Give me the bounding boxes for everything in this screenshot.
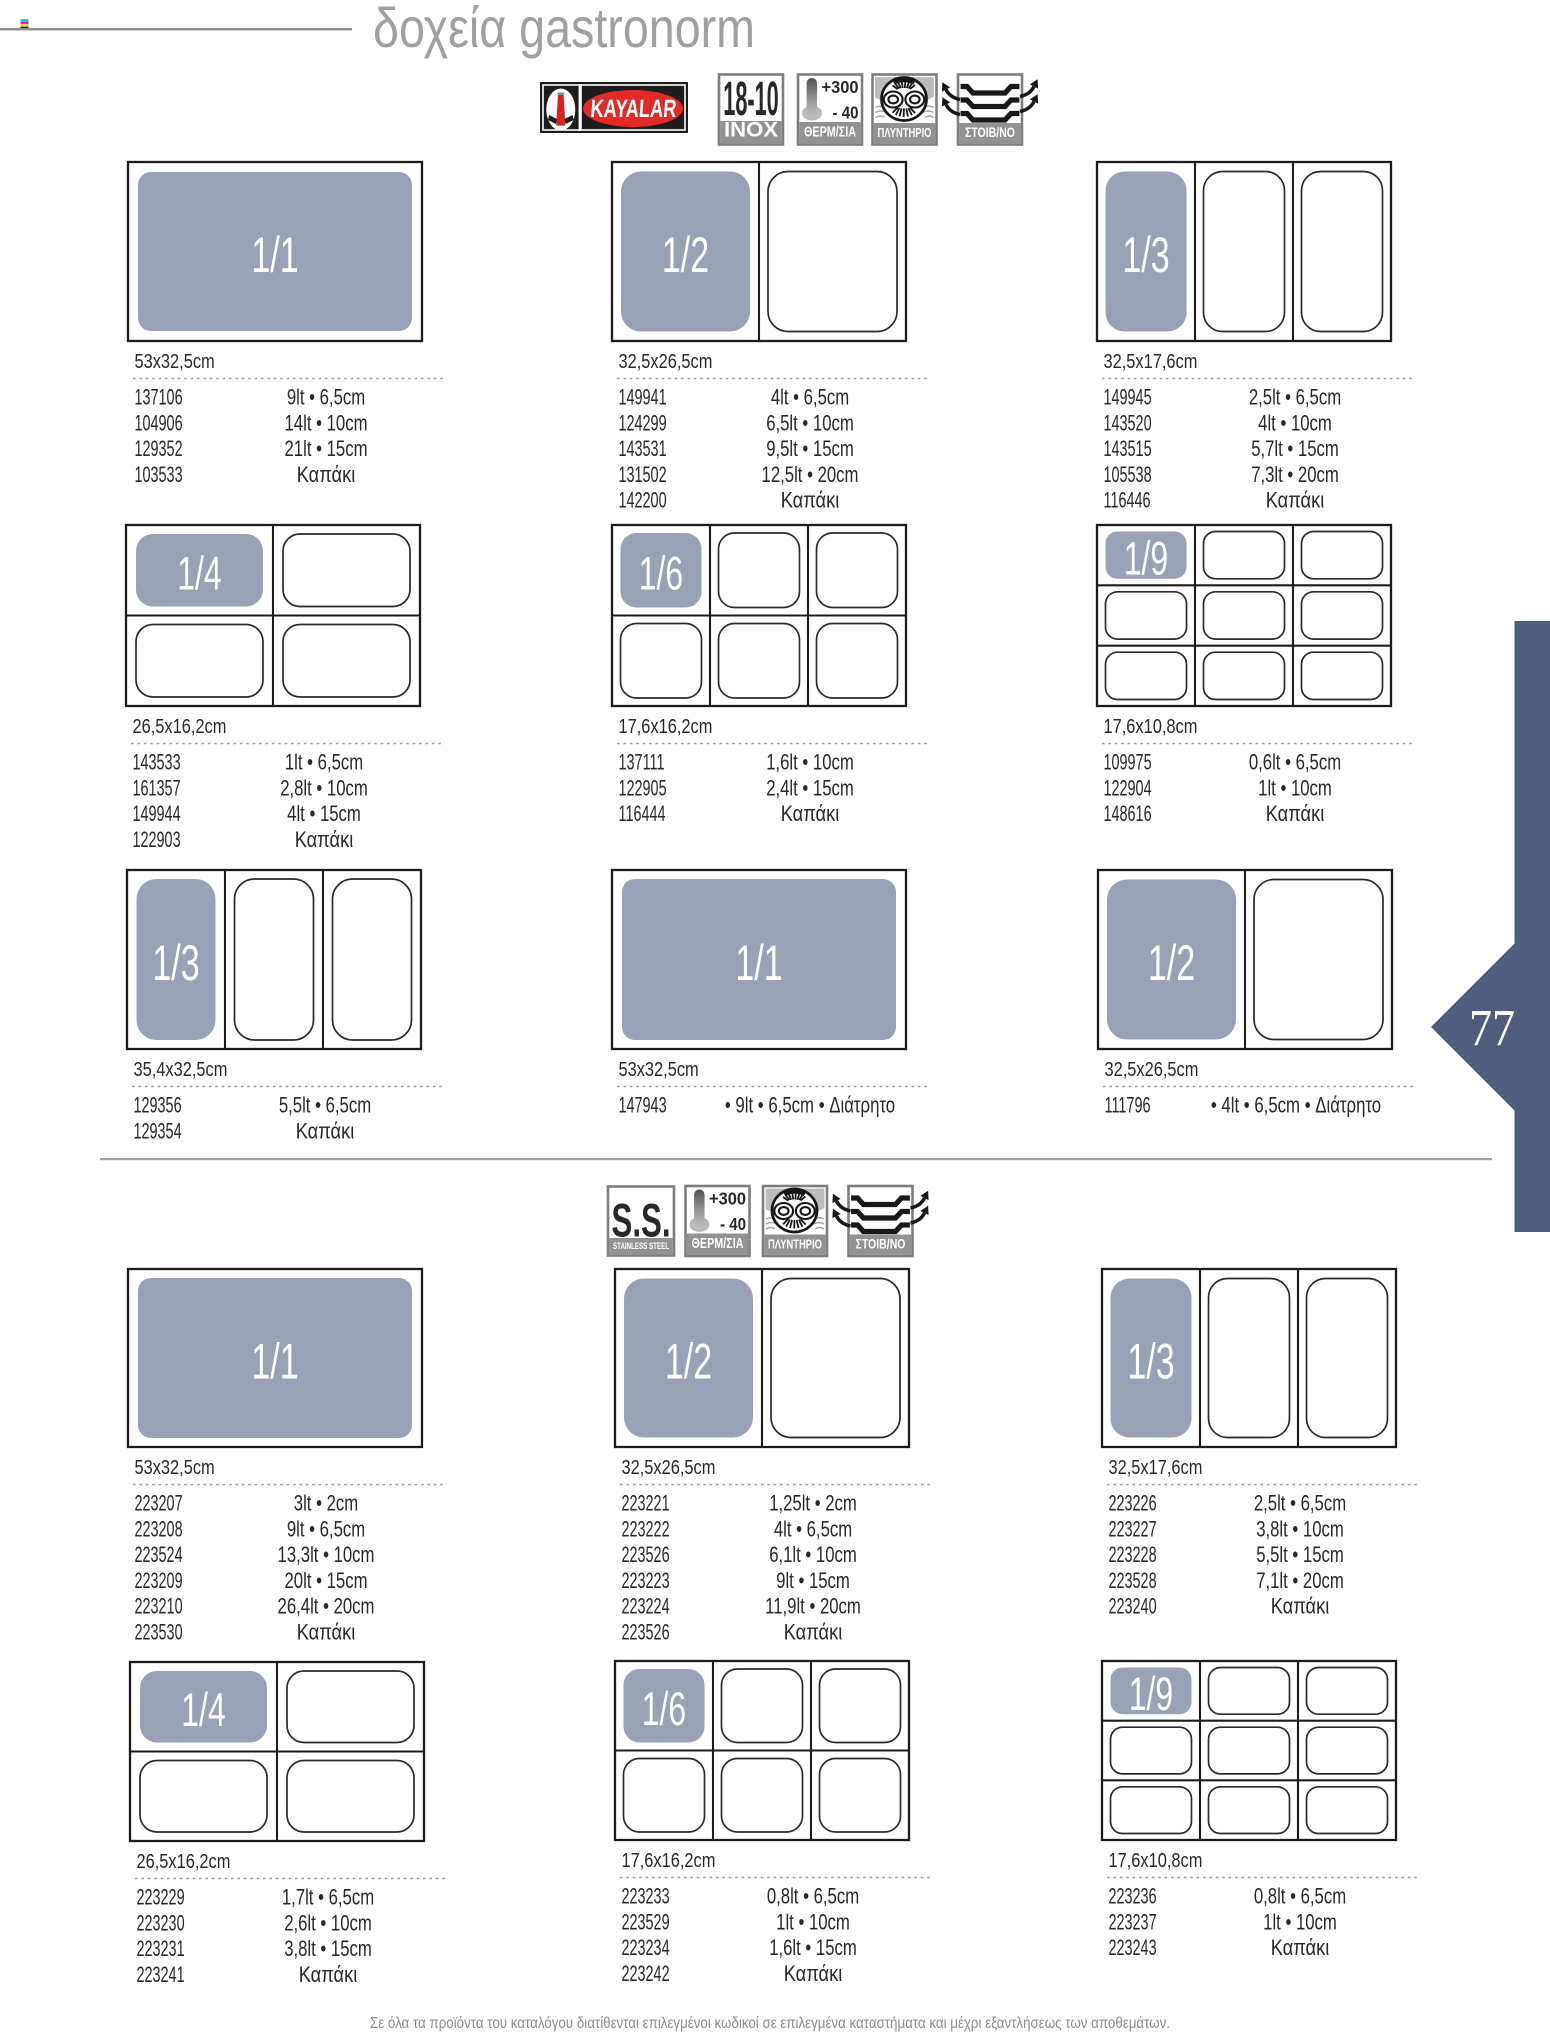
- svg-text:2,4lt • 15cm: 2,4lt • 15cm: [766, 775, 854, 800]
- svg-text:223224: 223224: [622, 1594, 670, 1619]
- svg-text:116446: 116446: [1104, 488, 1151, 513]
- svg-text:53x32,5cm: 53x32,5cm: [135, 1457, 215, 1479]
- svg-text:Καπάκι: Καπάκι: [297, 1620, 356, 1645]
- svg-text:Σε όλα τα προϊόντα του καταλόγ: Σε όλα τα προϊόντα του καταλόγου διατίθε…: [370, 2015, 1170, 2032]
- svg-text:7,3lt • 20cm: 7,3lt • 20cm: [1251, 462, 1339, 487]
- svg-text:223230: 223230: [137, 1910, 185, 1935]
- svg-text:137106: 137106: [135, 385, 183, 410]
- svg-text:ΠΛΥΝΤΗΡΙΟ: ΠΛΥΝΤΗΡΙΟ: [768, 1237, 822, 1251]
- svg-text:143515: 143515: [1104, 436, 1152, 461]
- svg-text:1/1: 1/1: [251, 1334, 298, 1390]
- svg-text:Καπάκι: Καπάκι: [784, 1961, 843, 1986]
- svg-text:223528: 223528: [1109, 1568, 1157, 1593]
- svg-text:223241: 223241: [137, 1962, 185, 1987]
- svg-text:Καπάκι: Καπάκι: [295, 827, 354, 852]
- svg-text:77: 77: [1469, 1000, 1515, 1057]
- svg-text:20lt • 15cm: 20lt • 15cm: [285, 1568, 368, 1593]
- svg-text:17,6x16,2cm: 17,6x16,2cm: [619, 716, 713, 738]
- svg-text:S.S.: S.S.: [612, 1194, 671, 1247]
- svg-text:ΣΤΟΙΒ/ΝΟ: ΣΤΟΙΒ/ΝΟ: [856, 1236, 906, 1251]
- svg-text:149941: 149941: [619, 385, 667, 410]
- svg-text:2,5lt • 6,5cm: 2,5lt • 6,5cm: [1249, 385, 1341, 410]
- svg-text:21lt • 15cm: 21lt • 15cm: [285, 436, 368, 461]
- svg-text:7,1lt • 20cm: 7,1lt • 20cm: [1256, 1568, 1344, 1593]
- svg-text:35,4x32,5cm: 35,4x32,5cm: [134, 1059, 228, 1081]
- svg-text:17,6x10,8cm: 17,6x10,8cm: [1109, 1850, 1203, 1872]
- svg-text:1/2: 1/2: [665, 1334, 712, 1390]
- svg-text:1,6lt • 15cm: 1,6lt • 15cm: [769, 1935, 857, 1960]
- svg-text:Καπάκι: Καπάκι: [781, 488, 840, 513]
- svg-text:148616: 148616: [1104, 801, 1152, 826]
- svg-text:1/4: 1/4: [181, 1683, 225, 1736]
- svg-text:122904: 122904: [1104, 775, 1152, 800]
- svg-text:Καπάκι: Καπάκι: [1266, 488, 1325, 513]
- svg-text:1,6lt • 10cm: 1,6lt • 10cm: [766, 750, 854, 775]
- svg-text:111796: 111796: [1105, 1093, 1151, 1118]
- svg-text:223237: 223237: [1109, 1909, 1157, 1934]
- svg-text:1,25lt • 2cm: 1,25lt • 2cm: [769, 1491, 857, 1516]
- svg-text:223229: 223229: [137, 1885, 185, 1910]
- svg-text:Καπάκι: Καπάκι: [1271, 1594, 1330, 1619]
- svg-text:223529: 223529: [622, 1909, 670, 1934]
- svg-text:223243: 223243: [1109, 1935, 1157, 1960]
- svg-text:1/2: 1/2: [662, 227, 709, 283]
- svg-text:1lt • 6,5cm: 1lt • 6,5cm: [285, 750, 363, 775]
- svg-text:3lt • 2cm: 3lt • 2cm: [294, 1491, 358, 1516]
- svg-text:103533: 103533: [135, 462, 183, 487]
- svg-text:149944: 149944: [133, 801, 181, 826]
- svg-text:105538: 105538: [1104, 462, 1152, 487]
- svg-text:104906: 104906: [135, 410, 183, 435]
- svg-text:4lt • 6,5cm: 4lt • 6,5cm: [771, 385, 849, 410]
- svg-text:+300: +300: [822, 77, 859, 97]
- svg-text:1/2: 1/2: [1148, 935, 1195, 991]
- svg-text:Καπάκι: Καπάκι: [296, 1118, 355, 1143]
- svg-text:26,5x16,2cm: 26,5x16,2cm: [137, 1851, 231, 1873]
- svg-text:223236: 223236: [1109, 1884, 1157, 1909]
- svg-text:4lt • 6,5cm: 4lt • 6,5cm: [774, 1516, 852, 1541]
- svg-text:12,5lt • 20cm: 12,5lt • 20cm: [762, 462, 859, 487]
- svg-text:1lt • 10cm: 1lt • 10cm: [1263, 1909, 1337, 1934]
- svg-text:131502: 131502: [619, 462, 667, 487]
- svg-text:6,5lt • 10cm: 6,5lt • 10cm: [766, 410, 854, 435]
- svg-text:14lt • 10cm: 14lt • 10cm: [285, 410, 368, 435]
- svg-text:223228: 223228: [1109, 1542, 1157, 1567]
- svg-text:9lt • 6,5cm: 9lt • 6,5cm: [287, 385, 365, 410]
- svg-text:0,6lt • 6,5cm: 0,6lt • 6,5cm: [1249, 750, 1341, 775]
- svg-text:11,9lt • 20cm: 11,9lt • 20cm: [765, 1594, 861, 1619]
- svg-text:ΣΤΟΙΒ/ΝΟ: ΣΤΟΙΒ/ΝΟ: [965, 125, 1015, 140]
- svg-text:0,8lt • 6,5cm: 0,8lt • 6,5cm: [767, 1884, 859, 1909]
- svg-text:223208: 223208: [135, 1516, 183, 1541]
- svg-text:+300: +300: [709, 1189, 746, 1209]
- svg-text:ΠΛΥΝΤΗΡΙΟ: ΠΛΥΝΤΗΡΙΟ: [878, 126, 932, 140]
- svg-text:3,8lt • 15cm: 3,8lt • 15cm: [284, 1936, 372, 1961]
- svg-text:Καπάκι: Καπάκι: [1266, 801, 1325, 826]
- svg-text:1/9: 1/9: [1129, 1667, 1173, 1720]
- svg-text:223526: 223526: [622, 1620, 670, 1645]
- svg-text:9lt • 6,5cm: 9lt • 6,5cm: [287, 1516, 365, 1541]
- svg-text:122905: 122905: [619, 775, 667, 800]
- svg-text:223524: 223524: [135, 1542, 183, 1567]
- svg-text:ΘΕΡΜ/ΣΙΑ: ΘΕΡΜ/ΣΙΑ: [692, 1236, 744, 1252]
- svg-text:ΘΕΡΜ/ΣΙΑ: ΘΕΡΜ/ΣΙΑ: [804, 125, 856, 141]
- svg-text:223234: 223234: [622, 1935, 670, 1960]
- svg-text:26,4lt • 20cm: 26,4lt • 20cm: [278, 1594, 375, 1619]
- svg-text:1/3: 1/3: [1122, 227, 1169, 283]
- svg-text:223207: 223207: [135, 1491, 183, 1516]
- svg-text:143533: 143533: [133, 750, 181, 775]
- svg-text:1/3: 1/3: [152, 935, 199, 991]
- svg-text:2,5lt • 6,5cm: 2,5lt • 6,5cm: [1254, 1491, 1346, 1516]
- svg-text:1/1: 1/1: [735, 935, 782, 991]
- svg-text:149945: 149945: [1104, 385, 1152, 410]
- svg-text:13,3lt • 10cm: 13,3lt • 10cm: [278, 1542, 375, 1567]
- svg-text:142200: 142200: [619, 488, 667, 513]
- svg-text:116444: 116444: [619, 801, 666, 826]
- svg-text:1/6: 1/6: [642, 1682, 686, 1735]
- svg-text:- 40: - 40: [720, 1214, 746, 1234]
- svg-text:223231: 223231: [137, 1936, 185, 1961]
- svg-text:6,1lt • 10cm: 6,1lt • 10cm: [769, 1542, 857, 1567]
- svg-text:Καπάκι: Καπάκι: [297, 462, 356, 487]
- svg-text:122903: 122903: [133, 827, 181, 852]
- svg-text:1/9: 1/9: [1124, 532, 1168, 585]
- svg-text:109975: 109975: [1104, 750, 1152, 775]
- svg-text:2,8lt • 10cm: 2,8lt • 10cm: [280, 775, 368, 800]
- svg-text:32,5x26,5cm: 32,5x26,5cm: [622, 1457, 716, 1479]
- svg-text:223226: 223226: [1109, 1491, 1157, 1516]
- svg-text:223526: 223526: [622, 1542, 670, 1567]
- svg-text:223242: 223242: [622, 1961, 670, 1986]
- svg-text:223210: 223210: [135, 1594, 183, 1619]
- svg-text:1,7lt • 6,5cm: 1,7lt • 6,5cm: [282, 1885, 374, 1910]
- svg-text:18-10: 18-10: [723, 73, 779, 126]
- svg-text:5,5lt • 6,5cm: 5,5lt • 6,5cm: [279, 1093, 371, 1118]
- svg-text:1/4: 1/4: [177, 547, 221, 600]
- svg-text:Καπάκι: Καπάκι: [781, 801, 840, 826]
- svg-text:Καπάκι: Καπάκι: [299, 1962, 358, 1987]
- svg-text:143520: 143520: [1104, 410, 1152, 435]
- svg-text:5,5lt • 15cm: 5,5lt • 15cm: [1256, 1542, 1344, 1567]
- svg-text:3,8lt • 10cm: 3,8lt • 10cm: [1256, 1516, 1344, 1541]
- svg-text:1lt • 10cm: 1lt • 10cm: [776, 1909, 850, 1934]
- svg-text:124299: 124299: [619, 410, 667, 435]
- svg-text:223240: 223240: [1109, 1594, 1157, 1619]
- svg-text:32,5x17,6cm: 32,5x17,6cm: [1104, 351, 1198, 373]
- svg-text:4lt • 10cm: 4lt • 10cm: [1258, 410, 1332, 435]
- svg-text:1/3: 1/3: [1127, 1334, 1174, 1390]
- svg-text:17,6x16,2cm: 17,6x16,2cm: [622, 1850, 716, 1872]
- svg-text:32,5x26,5cm: 32,5x26,5cm: [1105, 1059, 1199, 1081]
- svg-text:147943: 147943: [619, 1093, 667, 1118]
- svg-text:223223: 223223: [622, 1568, 670, 1593]
- svg-text:- 40: - 40: [833, 103, 859, 123]
- svg-text:223221: 223221: [622, 1491, 670, 1516]
- svg-text:9lt • 15cm: 9lt • 15cm: [776, 1568, 850, 1593]
- svg-text:223222: 223222: [622, 1516, 670, 1541]
- svg-text:1/1: 1/1: [251, 227, 298, 283]
- svg-text:223530: 223530: [135, 1620, 183, 1645]
- svg-text:0,8lt • 6,5cm: 0,8lt • 6,5cm: [1254, 1884, 1346, 1909]
- svg-text:129354: 129354: [134, 1118, 182, 1143]
- svg-text:5,7lt • 15cm: 5,7lt • 15cm: [1251, 436, 1339, 461]
- svg-text:2,6lt • 10cm: 2,6lt • 10cm: [284, 1910, 372, 1935]
- svg-text:26,5x16,2cm: 26,5x16,2cm: [133, 716, 227, 738]
- svg-text:Καπάκι: Καπάκι: [784, 1620, 843, 1645]
- svg-text:223227: 223227: [1109, 1516, 1157, 1541]
- svg-text:• 9lt • 6,5cm • Διάτρητο: • 9lt • 6,5cm • Διάτρητο: [725, 1093, 895, 1118]
- svg-text:137111: 137111: [619, 750, 665, 775]
- svg-text:223209: 223209: [135, 1568, 183, 1593]
- svg-text:KAYALAR: KAYALAR: [590, 95, 678, 123]
- svg-text:129352: 129352: [135, 436, 183, 461]
- svg-text:1/6: 1/6: [639, 547, 683, 600]
- svg-text:17,6x10,8cm: 17,6x10,8cm: [1104, 716, 1198, 738]
- svg-text:32,5x26,5cm: 32,5x26,5cm: [619, 351, 713, 373]
- svg-text:9,5lt • 15cm: 9,5lt • 15cm: [766, 436, 854, 461]
- svg-text:δοχεία gastronorm: δοχεία gastronorm: [373, 0, 755, 59]
- svg-text:1lt • 10cm: 1lt • 10cm: [1258, 775, 1332, 800]
- svg-text:• 4lt • 6,5cm • Διάτρητο: • 4lt • 6,5cm • Διάτρητο: [1211, 1093, 1381, 1118]
- svg-text:32,5x17,6cm: 32,5x17,6cm: [1109, 1457, 1203, 1479]
- svg-text:161357: 161357: [133, 775, 181, 800]
- svg-text:53x32,5cm: 53x32,5cm: [135, 351, 215, 373]
- svg-text:4lt • 15cm: 4lt • 15cm: [287, 801, 361, 826]
- svg-text:53x32,5cm: 53x32,5cm: [619, 1059, 699, 1081]
- svg-text:223233: 223233: [622, 1884, 670, 1909]
- svg-text:Καπάκι: Καπάκι: [1271, 1935, 1330, 1960]
- svg-text:129356: 129356: [134, 1093, 182, 1118]
- svg-text:143531: 143531: [619, 436, 667, 461]
